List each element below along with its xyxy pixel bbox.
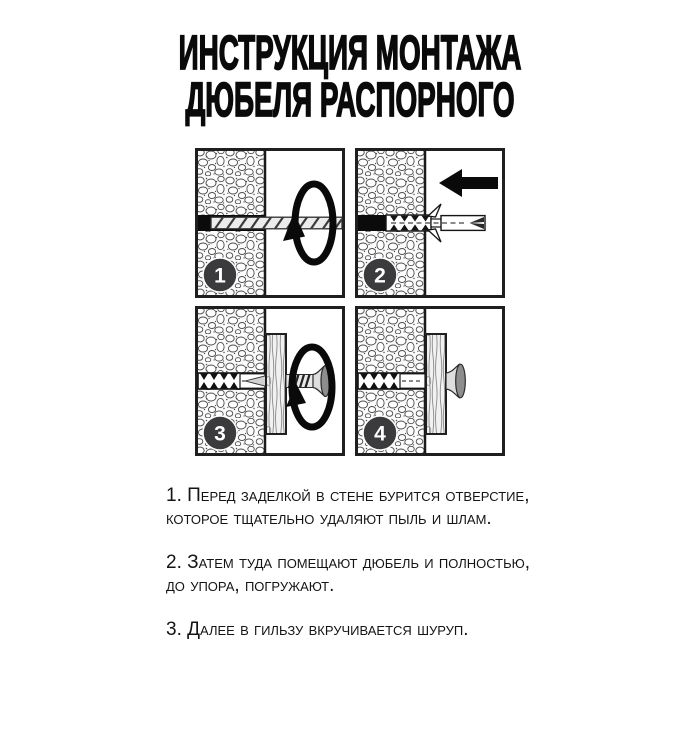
wood-board bbox=[426, 334, 446, 434]
instruction-step-1: 1. Перед заделкой в стене бурится отверс… bbox=[166, 484, 626, 530]
instruction-step-3: 3. Далее в гильзу вкручивается шуруп. bbox=[166, 618, 626, 641]
step-badge: 3 bbox=[203, 416, 237, 450]
dowel-icon bbox=[358, 373, 425, 389]
drilled-hole bbox=[358, 215, 389, 231]
step-1-illustration: 1 bbox=[195, 148, 345, 298]
steps-diagram: 1 bbox=[195, 148, 505, 456]
step-panel-2: 2 bbox=[355, 148, 505, 298]
instructions: 1. Перед заделкой в стене бурится отверс… bbox=[166, 484, 626, 641]
step-4-illustration: 4 bbox=[355, 306, 505, 456]
step-badge: 2 bbox=[363, 258, 397, 292]
step-panel-4: 4 bbox=[355, 306, 505, 456]
drill-bit-icon bbox=[211, 217, 342, 229]
step-badge: 4 bbox=[363, 416, 397, 450]
step-2-illustration: 2 bbox=[355, 148, 505, 298]
step-3-illustration: 3 bbox=[195, 306, 345, 456]
step-panel-1: 1 bbox=[195, 148, 345, 298]
instruction-sheet: ИНСТРУКЦИЯ МОНТАЖА ДЮБЕЛЯ РАСПОРНОГО bbox=[0, 30, 700, 730]
step-panel-3: 3 bbox=[195, 306, 345, 456]
badge-number: 4 bbox=[374, 423, 386, 446]
badge-number: 3 bbox=[214, 423, 226, 446]
page-title: ИНСТРУКЦИЯ МОНТАЖА ДЮБЕЛЯ РАСПОРНОГО bbox=[147, 30, 553, 124]
badge-number: 1 bbox=[214, 265, 226, 288]
wood-board bbox=[266, 334, 286, 434]
step-badge: 1 bbox=[203, 258, 237, 292]
badge-number: 2 bbox=[374, 265, 386, 288]
instruction-step-2: 2. Затем туда помещают дюбель и полность… bbox=[166, 551, 626, 597]
